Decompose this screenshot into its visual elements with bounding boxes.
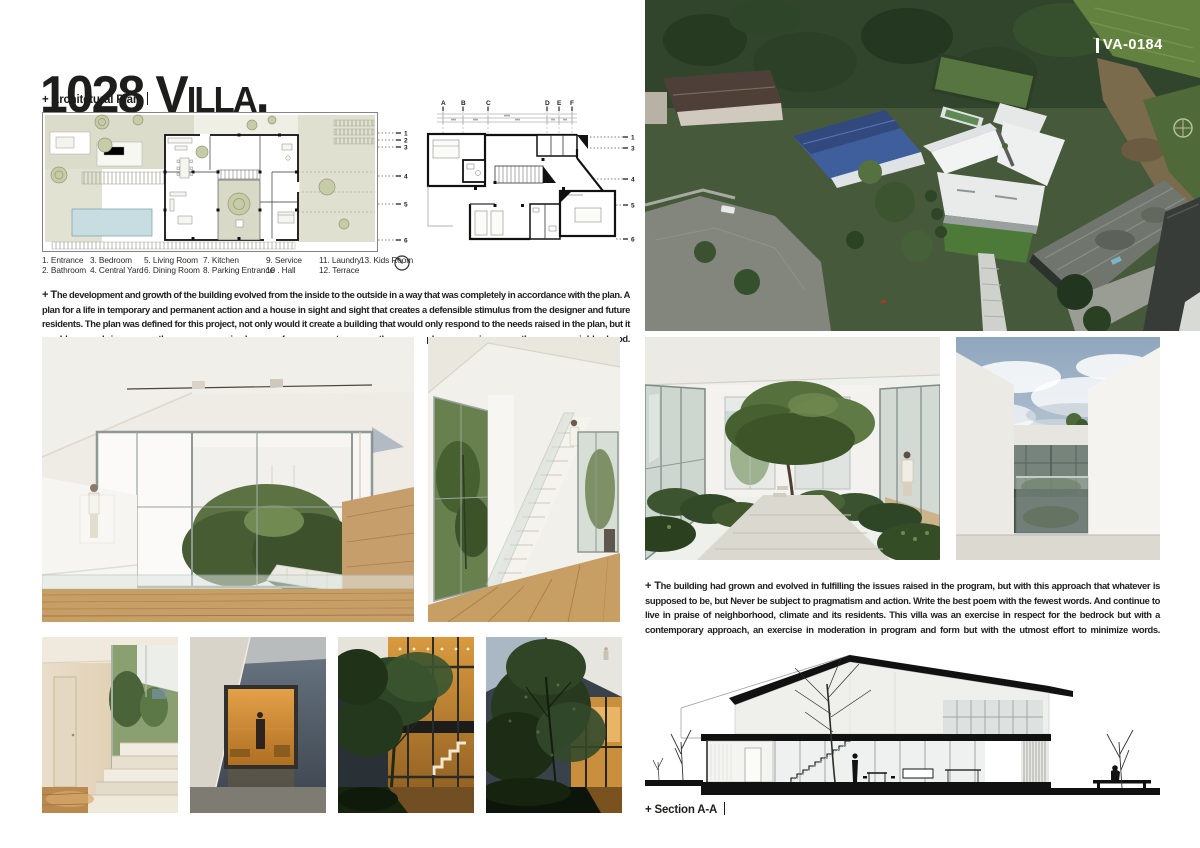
photo-dusk-courtyard — [338, 637, 474, 813]
section-label: + Section A-A — [645, 802, 725, 816]
grid-number: 5 — [404, 201, 408, 208]
grid-letter: C — [486, 100, 491, 107]
legend-col: 3. Bedroom 4. Central Yard — [90, 255, 144, 275]
project-statement-lead: + T — [645, 580, 661, 592]
legend-item: 1. Entrance — [42, 255, 86, 265]
grid-letter: F — [570, 100, 574, 107]
wood-floor — [42, 589, 414, 622]
grid-number: 3 — [631, 145, 635, 152]
north-arrow-icon — [393, 254, 411, 272]
legend-col: 7. Kitchen 8. Parking Entrance — [203, 255, 274, 275]
presentation-board: 1028 Villa. + Architetural Plan — [0, 0, 1200, 848]
reflection — [228, 769, 294, 787]
legend-col: 5. Living Room 6. Dining Room — [144, 255, 200, 275]
grid-number: 4 — [631, 176, 635, 183]
grid-number: 6 — [631, 236, 635, 243]
project-statement-text: he building had grown and evolved in ful… — [645, 580, 1160, 635]
upper-floor — [735, 662, 1049, 734]
ground-floor — [707, 741, 1049, 782]
neighbor-house-brown-roof — [645, 70, 783, 126]
grid-number: 1 — [404, 130, 408, 137]
label-divider — [147, 92, 148, 105]
wood-floor — [42, 787, 94, 813]
photo-courtyard — [645, 337, 940, 560]
grid-letter: E — [557, 100, 562, 107]
project-code-badge: VA-0184 — [1096, 38, 1163, 53]
section-label-text: + Section A-A — [645, 804, 717, 816]
grid-number: 4 — [404, 173, 408, 180]
legend-item: 7. Kitchen — [203, 255, 274, 265]
legend-item: 2. Bathroom — [42, 265, 86, 275]
grid-number: 2 — [404, 137, 408, 144]
legend-item: 9. Service — [266, 255, 302, 265]
photo-dusk-window — [190, 637, 326, 813]
legend-item: 12. Terrace — [319, 265, 361, 275]
ground — [645, 780, 1160, 795]
legend-item: 3. Bedroom — [90, 255, 144, 265]
floor-plan-ground: 1 2 3 4 5 6 — [42, 112, 415, 252]
pool — [72, 209, 152, 236]
grid-number: 3 — [404, 144, 408, 151]
floor — [190, 787, 326, 813]
grid-letter: B — [461, 100, 466, 107]
photo-hallway-steps — [42, 637, 178, 813]
left-volume — [956, 352, 1014, 560]
legend-item: 5. Living Room — [144, 255, 200, 265]
plan-description-lead: + T — [42, 289, 57, 301]
courtyard-tree — [228, 193, 250, 215]
photo-staircase — [428, 337, 620, 622]
label-divider — [724, 802, 725, 815]
building-footprint — [164, 134, 300, 242]
door — [54, 677, 76, 787]
legend-item: 6. Dining Room — [144, 265, 200, 275]
terrace-floor — [956, 535, 1160, 560]
section-drawing — [645, 642, 1160, 800]
grid-number: 6 — [404, 237, 408, 244]
legend-item: 10 . Hall — [266, 265, 302, 275]
legend-item: 8. Parking Entrance — [203, 265, 274, 275]
photo-interior-atrium — [42, 337, 414, 622]
floor-plan-upper: A B C D E F — [425, 96, 640, 252]
glass-railing — [42, 575, 414, 589]
upper-plan-walls — [428, 134, 615, 239]
ground — [338, 787, 474, 813]
dimension-lines — [437, 112, 577, 124]
tiny-person — [604, 647, 609, 660]
legend-col: 1. Entrance 2. Bathroom — [42, 255, 86, 275]
grid-letters: A B C D E F — [441, 100, 574, 135]
photo-dusk-tree — [486, 637, 622, 813]
grid-number: 5 — [631, 202, 635, 209]
legend-item: 11. Laundry — [319, 255, 361, 265]
photo-sky-frame — [956, 337, 1160, 560]
plan-section-label-text: + Architetural Plan — [42, 94, 140, 106]
legend-col: 11. Laundry 12. Terrace — [319, 255, 361, 275]
atrium-glass — [97, 432, 372, 593]
plan-section-label: + Architetural Plan — [42, 92, 148, 106]
project-statement: + The building had grown and evolved in … — [645, 579, 1160, 637]
grid-number: 1 — [631, 134, 635, 141]
glass-tree-left — [434, 397, 491, 601]
courtyard-center — [1014, 413, 1088, 533]
grid-leaders-ground: 1 2 3 4 5 6 — [378, 130, 408, 244]
grid-letter: A — [441, 100, 446, 107]
plan-description-text: he development and growth of the buildin… — [42, 289, 630, 344]
grid-letter: D — [545, 100, 550, 107]
floor-slab — [701, 734, 1051, 741]
legend-item: 4. Central Yard — [90, 265, 144, 275]
legend-col: 9. Service 10 . Hall — [266, 255, 302, 275]
corridor-right — [578, 432, 618, 552]
lit-window — [224, 685, 298, 769]
